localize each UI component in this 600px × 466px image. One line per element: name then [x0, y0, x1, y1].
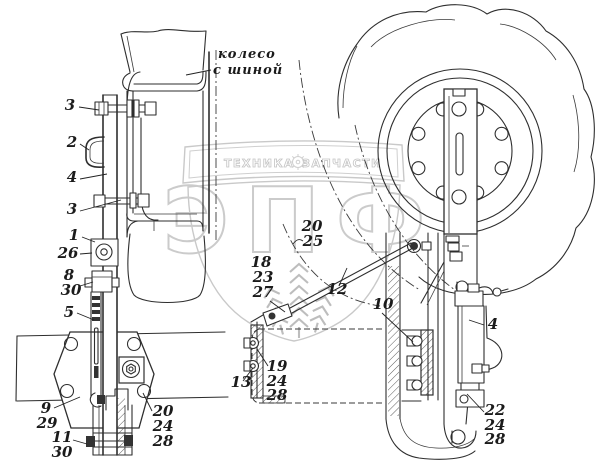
bar-top-tab — [453, 89, 465, 96]
diagram-svg: ТЕХНИКА ЗАПЧАСТИ ЭПФ — [0, 0, 600, 466]
bottom-bolt-3 — [94, 193, 149, 208]
rod-clevis-pin — [269, 313, 276, 320]
tire-inner-edge-a — [371, 19, 455, 47]
arm-foot-outer — [386, 419, 475, 459]
square-nut-plate — [119, 357, 144, 383]
part-callout: 1 — [69, 226, 79, 244]
arm-hatch — [388, 266, 399, 416]
handle-2 — [86, 137, 104, 167]
part-callout: 13 — [231, 373, 252, 391]
part-callout: 30 — [52, 443, 73, 461]
wheel-holder-bar — [444, 89, 477, 234]
part-callout: 28 — [484, 430, 506, 448]
part-callout: 12 — [327, 280, 348, 298]
parts-diagram-canvas: ТЕХНИКА ЗАПЧАСТИ ЭПФ — [0, 0, 600, 466]
cylinder-cap — [455, 291, 483, 306]
top-bolt-3 — [95, 100, 156, 117]
part-callout: 28 — [152, 432, 174, 450]
wheel-note: колесо с шиной — [213, 47, 283, 78]
part-callout: 28 — [266, 386, 288, 404]
part-callout: 25 — [302, 232, 324, 250]
part-callout: 3 — [67, 200, 77, 218]
cylinder-rod — [461, 383, 479, 390]
bar-top-hole — [452, 102, 466, 116]
mount-bolts — [407, 336, 422, 390]
part-callout: 26 — [57, 244, 79, 262]
part-callout: 4 — [67, 168, 77, 186]
wheel-note-line1: колесо — [218, 47, 276, 62]
top-clamp-bolts — [446, 236, 469, 261]
wheel-note-line2: с шиной — [213, 63, 283, 78]
part-callout: 3 — [65, 96, 75, 114]
hydraulic-cylinder — [455, 284, 508, 407]
tire-inner-edge-c — [573, 95, 579, 172]
part-callout: 4 — [488, 315, 498, 333]
tire-inner-edge-b — [500, 24, 556, 60]
part-callout: 2 — [66, 133, 77, 151]
part-callout: 10 — [373, 295, 394, 313]
wheat-ear-center — [290, 264, 308, 338]
arm-foot-cap — [444, 424, 476, 448]
part-callout: 30 — [61, 281, 82, 299]
tire-top-edge — [121, 30, 206, 34]
part-callout: 5 — [64, 303, 74, 321]
part-callout: 27 — [252, 283, 274, 301]
arm-foot-inner — [400, 418, 474, 448]
anchor-block-1 — [91, 239, 118, 266]
foot-d-hole — [451, 430, 465, 444]
